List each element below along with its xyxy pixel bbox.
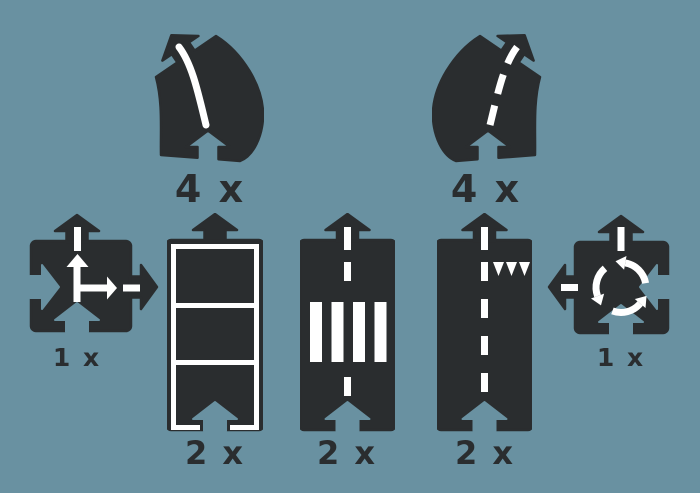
zebra-stripe-1 [310,302,322,362]
zebra-stripe-4 [375,302,387,362]
curved-road-solid-line-graphic [138,30,264,167]
road-set-contents-illustration: 4 x 4 x 1 x [0,0,700,493]
center-dash-4 [481,373,488,392]
section-divider-line-2 [171,360,259,365]
bottom-edge-line-left [171,425,200,430]
bottom-edge-line-right [230,425,259,430]
road-silhouette [156,35,263,161]
top-connector-tab [193,214,237,241]
road-silhouette [433,35,540,161]
center-dash-3 [481,336,488,355]
up-arrow-shaft [74,266,81,302]
top-edge-line [171,244,259,249]
center-dash-upper [344,262,351,281]
piece-curve-solid-line [138,30,264,171]
count-label-curve-solid: 4 x [150,170,270,208]
count-label-lane-sections: 2 x [155,437,275,469]
count-label-dashed-yield: 2 x [425,437,545,469]
piece-zebra-crossing [300,213,395,437]
piece-roundabout [545,212,675,351]
piece-straight-lane-sections [167,213,263,437]
center-dash-on-tab [344,227,351,250]
curved-road-dashed-line-graphic [432,30,558,167]
center-dash-2 [481,299,488,318]
center-dash-on-tab [481,227,488,250]
top-lane-dash [74,227,81,251]
center-dash-lower [344,377,351,396]
count-label-curve-dashed: 4 x [426,170,546,208]
right-edge-line [254,244,259,430]
piece-crossroad-intersection [20,212,160,351]
count-label-roundabout: 1 x [561,345,681,370]
zebra-stripe-3 [353,302,365,362]
section-divider-line-1 [171,303,259,308]
roundabout-graphic [545,212,675,347]
piece-dashed-yield [437,213,532,437]
center-dash-1 [481,262,488,281]
left-edge-line [171,244,176,430]
right-lane-dash [123,285,140,292]
dashed-yield-road-graphic [437,213,532,433]
crossroad-graphic [20,212,160,347]
piece-curve-dashed-line [432,30,558,171]
top-lane-dash [618,227,625,251]
count-label-crossroad: 1 x [17,345,137,370]
zebra-stripe-2 [332,302,344,362]
straight-road-sections-graphic [167,213,263,433]
left-lane-dash [561,284,578,291]
zebra-crossing-graphic [300,213,395,433]
right-arrow-shaft [79,285,107,292]
count-label-zebra: 2 x [287,437,407,469]
